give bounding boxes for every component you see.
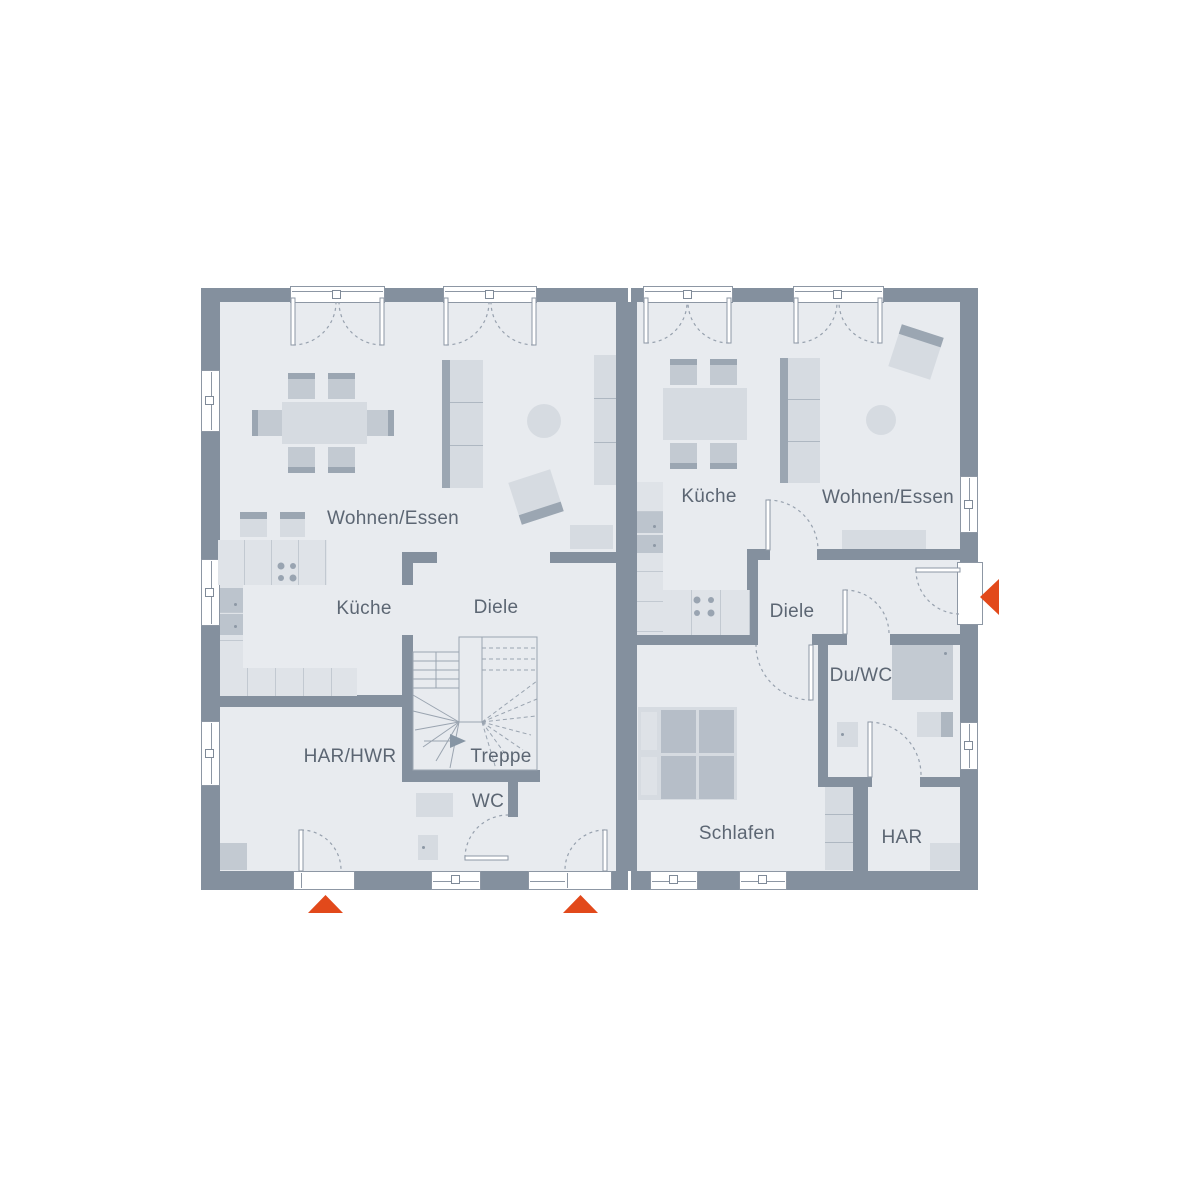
window-mark xyxy=(332,290,341,299)
room-label-du-wc: Du/WC xyxy=(830,665,893,687)
stool xyxy=(240,512,267,537)
cabinet xyxy=(594,355,616,485)
chair xyxy=(252,410,282,436)
room-label-har-hwr: HAR/HWR xyxy=(304,746,397,768)
window-mark xyxy=(964,741,973,750)
wall xyxy=(853,787,868,871)
kitchen-counter xyxy=(220,668,357,696)
appliance xyxy=(637,535,663,553)
window-mark xyxy=(758,875,767,884)
room-label-har: HAR xyxy=(881,827,922,849)
window-mark xyxy=(451,875,460,884)
chair xyxy=(328,373,355,399)
entrance-marker xyxy=(308,895,343,913)
wall xyxy=(550,552,616,563)
window-mark xyxy=(833,290,842,299)
party-wall xyxy=(616,288,637,890)
shelf-unit xyxy=(442,360,483,488)
room-label-kueche-left: Küche xyxy=(336,598,391,620)
stool xyxy=(280,512,305,537)
room-label-diele-left: Diele xyxy=(474,597,519,619)
window-mark xyxy=(205,396,214,405)
chair xyxy=(288,373,315,399)
floor-plan: Wohnen/Essen Küche Diele HAR/HWR Treppe … xyxy=(0,0,1200,1200)
chair xyxy=(670,359,697,385)
appliance xyxy=(637,512,663,533)
wall xyxy=(747,549,770,560)
wall xyxy=(402,563,413,585)
wall xyxy=(402,552,437,563)
entrance-door-left-unit-hall xyxy=(528,871,612,890)
chair xyxy=(670,443,697,469)
wall xyxy=(402,770,540,782)
utility-unit xyxy=(220,843,247,870)
kitchen-counter xyxy=(663,590,750,635)
shower xyxy=(892,645,953,700)
wall xyxy=(812,634,847,645)
appliance xyxy=(220,614,243,635)
kitchen-counter xyxy=(637,482,663,635)
dining-table xyxy=(663,388,747,440)
chair xyxy=(367,410,394,436)
wardrobe xyxy=(825,787,853,870)
wall xyxy=(402,635,413,770)
room-label-diele-right: Diele xyxy=(770,601,815,623)
double-bed xyxy=(638,707,737,800)
wall xyxy=(890,634,960,645)
toilet xyxy=(418,835,438,860)
shelf-unit xyxy=(780,358,820,483)
dining-table xyxy=(282,402,367,444)
entrance-door-left-unit xyxy=(293,871,355,890)
chair xyxy=(328,447,355,473)
room-label-kueche-right: Küche xyxy=(681,486,736,508)
room-label-schlafen: Schlafen xyxy=(699,823,775,845)
room-label-wohnen-essen-right: Wohnen/Essen xyxy=(822,487,954,509)
window-mark xyxy=(205,749,214,758)
side-table xyxy=(527,404,561,438)
entrance-marker xyxy=(563,895,598,913)
washbasin xyxy=(416,793,453,817)
appliance xyxy=(220,588,243,612)
chair xyxy=(710,443,737,469)
toilet xyxy=(837,722,858,747)
chair xyxy=(288,447,315,473)
room-label-wc: WC xyxy=(472,791,504,813)
room-label-wohnen-essen-left: Wohnen/Essen xyxy=(327,508,459,530)
wall xyxy=(220,695,402,707)
window-mark xyxy=(205,588,214,597)
washbasin xyxy=(917,712,953,737)
party-wall-joint xyxy=(628,288,631,302)
wall xyxy=(818,777,872,787)
cabinet xyxy=(930,843,960,870)
wall xyxy=(637,634,758,645)
entrance-door-right-unit xyxy=(957,562,983,625)
wall xyxy=(920,777,960,787)
wall xyxy=(508,782,518,817)
kitchen-counter xyxy=(218,540,327,585)
window-mark xyxy=(485,290,494,299)
wall xyxy=(818,645,828,777)
side-table xyxy=(866,405,896,435)
window-mark xyxy=(964,500,973,509)
sofa xyxy=(570,525,613,549)
chair xyxy=(710,359,737,385)
floor-left-unit xyxy=(220,302,616,871)
sofa xyxy=(842,530,926,549)
window-mark xyxy=(669,875,678,884)
window-mark xyxy=(683,290,692,299)
party-wall-joint xyxy=(628,871,631,890)
room-label-treppe: Treppe xyxy=(470,746,531,768)
wall xyxy=(817,549,960,560)
